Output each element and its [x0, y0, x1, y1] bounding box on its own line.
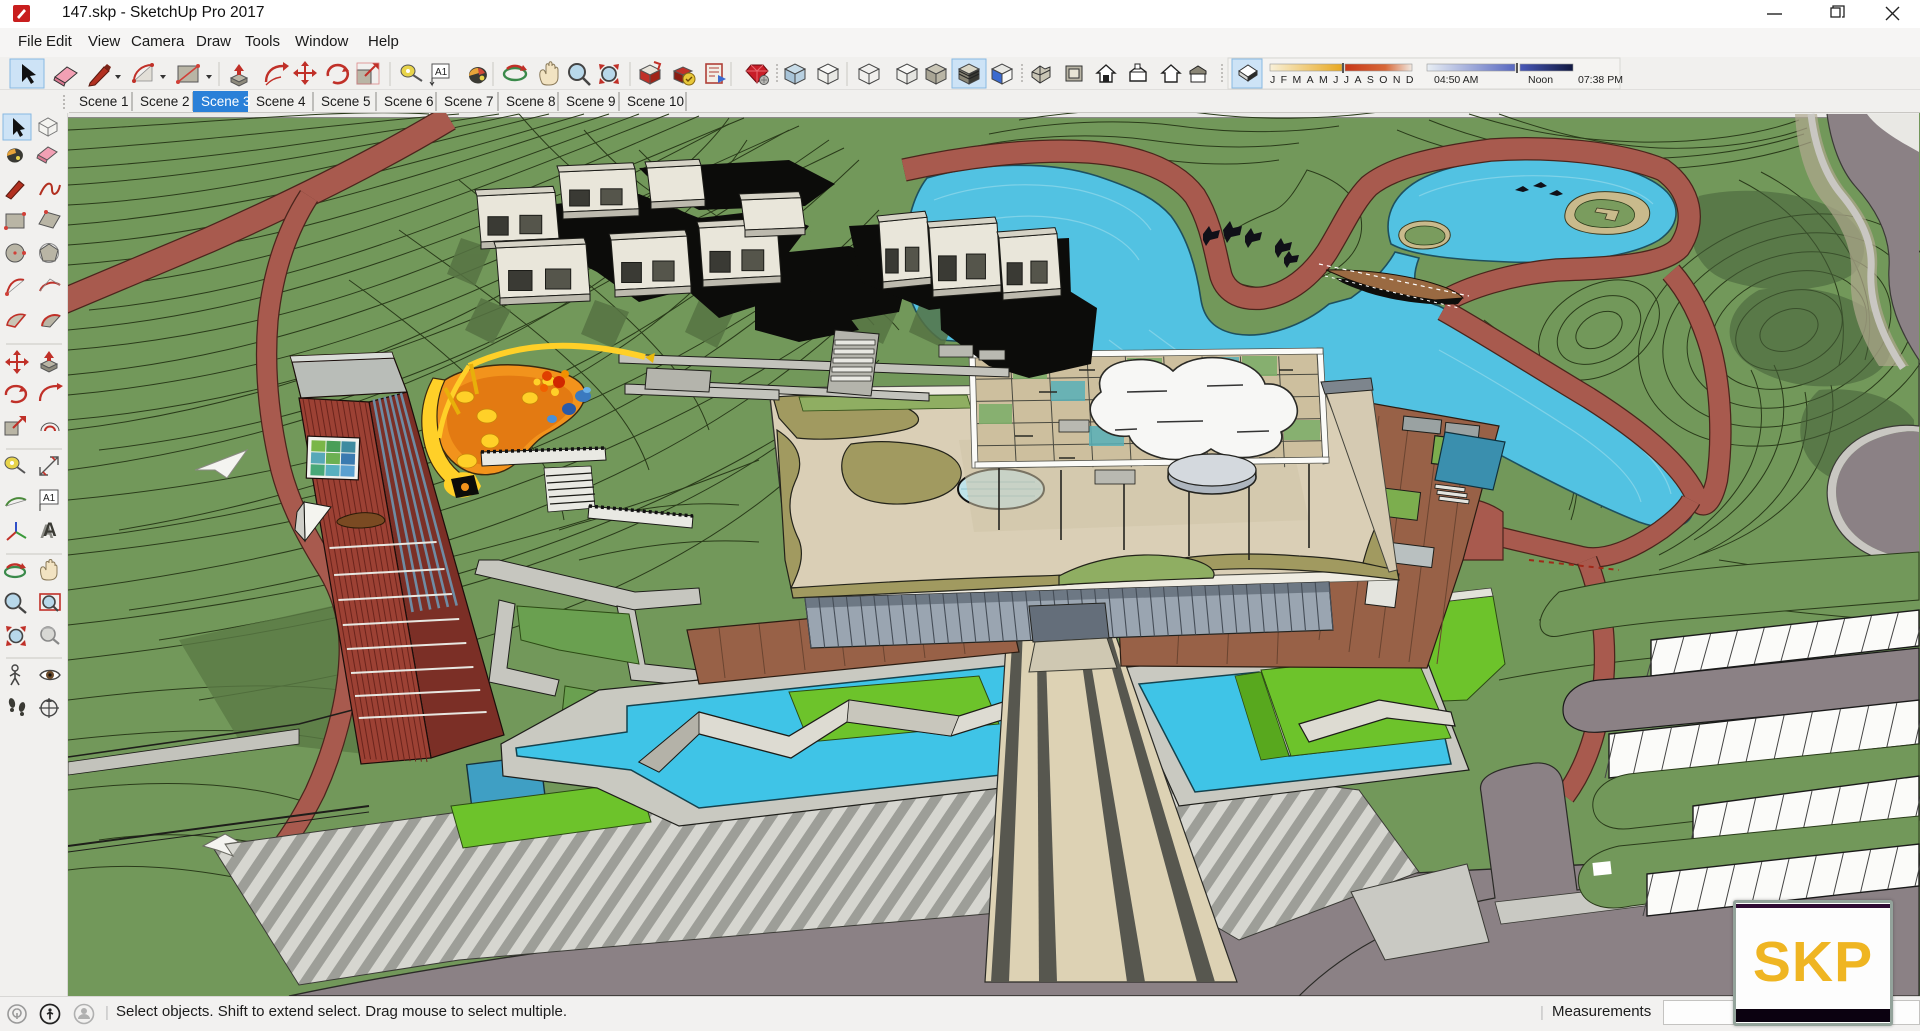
svg-text:Noon: Noon — [1528, 74, 1553, 86]
svg-text:A1: A1 — [43, 493, 56, 504]
svg-text:Scene 10: Scene 10 — [627, 94, 684, 109]
svg-text:Scene 7: Scene 7 — [444, 94, 494, 109]
svg-text:JFMAMJJASOND: JFMAMJJASOND — [1270, 74, 1419, 86]
svg-text:Scene 3: Scene 3 — [201, 94, 251, 109]
svg-text:07:38 PM: 07:38 PM — [1578, 74, 1623, 86]
svg-text:Scene 5: Scene 5 — [321, 94, 371, 109]
svg-text:04:50 AM: 04:50 AM — [1434, 74, 1478, 86]
svg-text:A: A — [43, 520, 57, 541]
svg-text:Scene 4: Scene 4 — [256, 94, 306, 109]
svg-text:Scene 9: Scene 9 — [566, 94, 616, 109]
svg-text:Scene 8: Scene 8 — [506, 94, 556, 109]
svg-text:Scene 2: Scene 2 — [140, 94, 190, 109]
svg-text:Scene 1: Scene 1 — [79, 94, 129, 109]
svg-text:Scene 6: Scene 6 — [384, 94, 434, 109]
svg-text:A1: A1 — [435, 67, 448, 78]
